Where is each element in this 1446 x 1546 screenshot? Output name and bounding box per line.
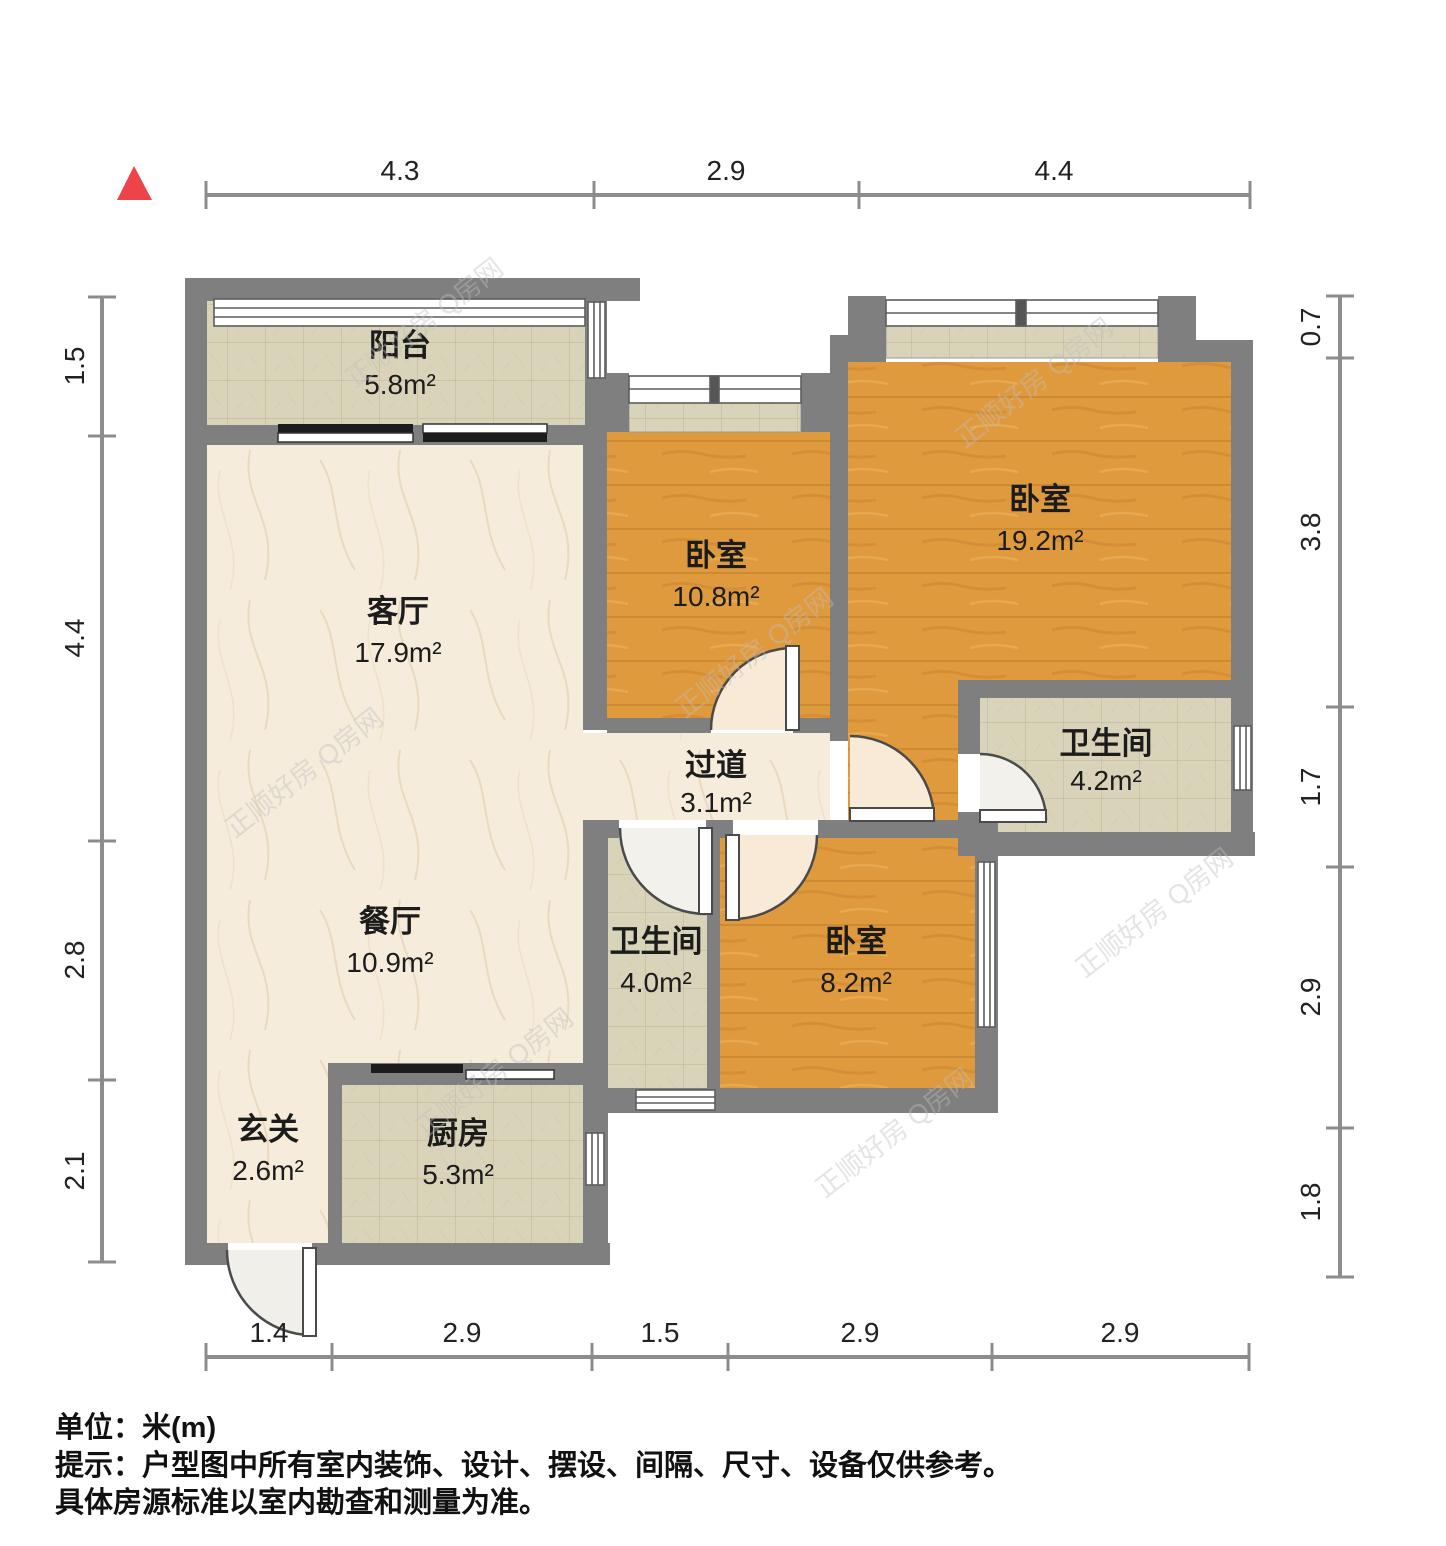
dim-left-4: 2.1 xyxy=(59,1152,90,1191)
window-sill-bedroom-b xyxy=(886,326,1158,358)
dim-left-3: 2.8 xyxy=(59,941,90,980)
floor-plan-canvas: 阳台 5.8m² 客厅 17.9m² 卧室 10.8m² 卧室 19.2m² 过… xyxy=(0,0,1446,1546)
footer-unit-line: 单位：米(m) xyxy=(55,1410,216,1444)
dim-top-1: 4.3 xyxy=(381,155,420,186)
wall-segment xyxy=(583,820,608,1265)
room-label-bedroom-a: 卧室 xyxy=(685,538,747,573)
wall-segment xyxy=(328,1085,342,1245)
wall-segment xyxy=(607,373,629,432)
room-floor-bedroom-b xyxy=(848,362,1231,680)
wall-segment xyxy=(185,278,207,1265)
dim-bottom-4: 2.9 xyxy=(841,1317,880,1348)
room-label-hallway: 过道 xyxy=(685,748,747,783)
wall-segment xyxy=(185,1243,228,1265)
kitchen-window-icon xyxy=(586,1133,604,1185)
dim-bottom-1: 1.4 xyxy=(250,1317,289,1348)
room-area-dining: 10.9m² xyxy=(346,947,433,978)
dim-right-4: 2.9 xyxy=(1295,978,1326,1017)
dim-left-2: 4.4 xyxy=(59,619,90,658)
balcony-top-window-icon xyxy=(214,299,585,326)
balcony-side-window-icon xyxy=(588,302,605,378)
room-area-living: 17.9m² xyxy=(354,637,441,668)
room-label-bedroom-b: 卧室 xyxy=(1009,482,1071,517)
bedroom-a-window-icon xyxy=(629,376,801,403)
dim-top-3: 4.4 xyxy=(1035,155,1074,186)
room-area-kitchen: 5.3m² xyxy=(422,1159,494,1190)
bedroom-b-bay-window-icon xyxy=(886,300,1158,326)
footer-tip-line2: 具体房源标准以室内勘查和测量为准。 xyxy=(55,1485,548,1519)
room-label-dining: 餐厅 xyxy=(359,904,421,939)
room-area-bath-b: 4.2m² xyxy=(1070,765,1142,796)
dim-right-1: 0.7 xyxy=(1295,308,1326,347)
watermark-text: 正顺好房 Q房网 xyxy=(1070,842,1239,983)
floor-plan-page: 阳台 5.8m² 客厅 17.9m² 卧室 10.8m² 卧室 19.2m² 过… xyxy=(0,0,1446,1546)
room-area-bedroom-a: 10.8m² xyxy=(672,581,759,612)
balcony-sliding-door-icon xyxy=(278,424,547,442)
wall-segment xyxy=(583,425,607,730)
wall-segment xyxy=(848,820,975,838)
north-arrow-icon xyxy=(117,166,152,200)
dimension-right xyxy=(1326,296,1354,1277)
room-label-bath-b: 卫生间 xyxy=(1060,726,1153,761)
room-area-bedroom-b: 19.2m² xyxy=(996,525,1083,556)
dim-right-5: 1.8 xyxy=(1295,1183,1326,1222)
dimension-left xyxy=(88,297,116,1262)
wall-segment xyxy=(818,820,848,838)
wall-segment xyxy=(801,373,830,432)
room-area-hallway: 3.1m² xyxy=(680,787,752,818)
dim-bottom-5: 2.9 xyxy=(1101,1317,1140,1348)
dim-bottom-2: 2.9 xyxy=(443,1317,482,1348)
wall-segment xyxy=(607,820,619,838)
room-area-entry: 2.6m² xyxy=(232,1155,304,1186)
room-label-bath-a: 卫生间 xyxy=(610,924,703,959)
dim-top-2: 2.9 xyxy=(707,155,746,186)
room-area-bath-a: 4.0m² xyxy=(620,967,692,998)
dimension-bottom xyxy=(206,1343,1249,1371)
wall-segment xyxy=(958,698,980,754)
bedroom-c-window-icon xyxy=(978,862,995,1027)
wall-segment xyxy=(848,296,886,362)
dim-left-1: 1.5 xyxy=(59,347,90,386)
footer-notes: 单位：米(m) 提示：户型图中所有室内装饰、设计、摆设、间隔、尺寸、设备仅供参考… xyxy=(55,1410,1012,1519)
wall-segment xyxy=(185,278,640,301)
wall-segment xyxy=(312,1243,610,1265)
footer-tip-line1: 提示：户型图中所有室内装饰、设计、摆设、间隔、尺寸、设备仅供参考。 xyxy=(55,1448,1012,1482)
room-label-bedroom-c: 卧室 xyxy=(825,924,887,959)
wall-segment xyxy=(830,335,848,733)
room-label-entry: 玄关 xyxy=(237,1112,299,1147)
wall-segment xyxy=(958,680,1231,698)
dim-right-3: 1.7 xyxy=(1295,768,1326,807)
window-sill-bedroom-a xyxy=(629,402,801,432)
dim-bottom-3: 1.5 xyxy=(641,1317,680,1348)
wall-segment xyxy=(830,733,848,741)
dim-right-2: 3.8 xyxy=(1295,513,1326,552)
bath-b-window-icon xyxy=(1234,726,1251,790)
wall-segment xyxy=(1158,296,1196,362)
room-label-living: 客厅 xyxy=(367,594,429,629)
wall-segment xyxy=(607,718,711,733)
room-area-bedroom-c: 8.2m² xyxy=(820,967,892,998)
bath-a-window-icon xyxy=(636,1090,715,1110)
